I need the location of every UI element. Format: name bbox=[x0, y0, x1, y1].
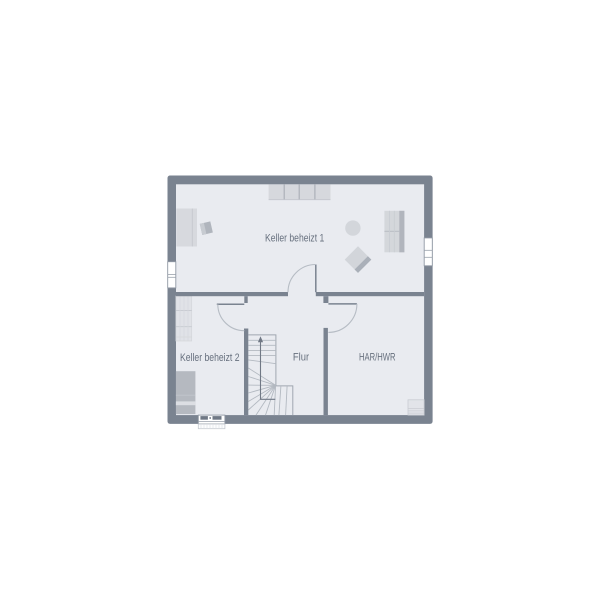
svg-text:Keller beheizt 2: Keller beheizt 2 bbox=[180, 352, 240, 364]
svg-text:Keller beheizt 1: Keller beheizt 1 bbox=[265, 232, 324, 244]
svg-text:HAR/HWR: HAR/HWR bbox=[359, 351, 396, 363]
svg-text:Flur: Flur bbox=[293, 351, 310, 363]
